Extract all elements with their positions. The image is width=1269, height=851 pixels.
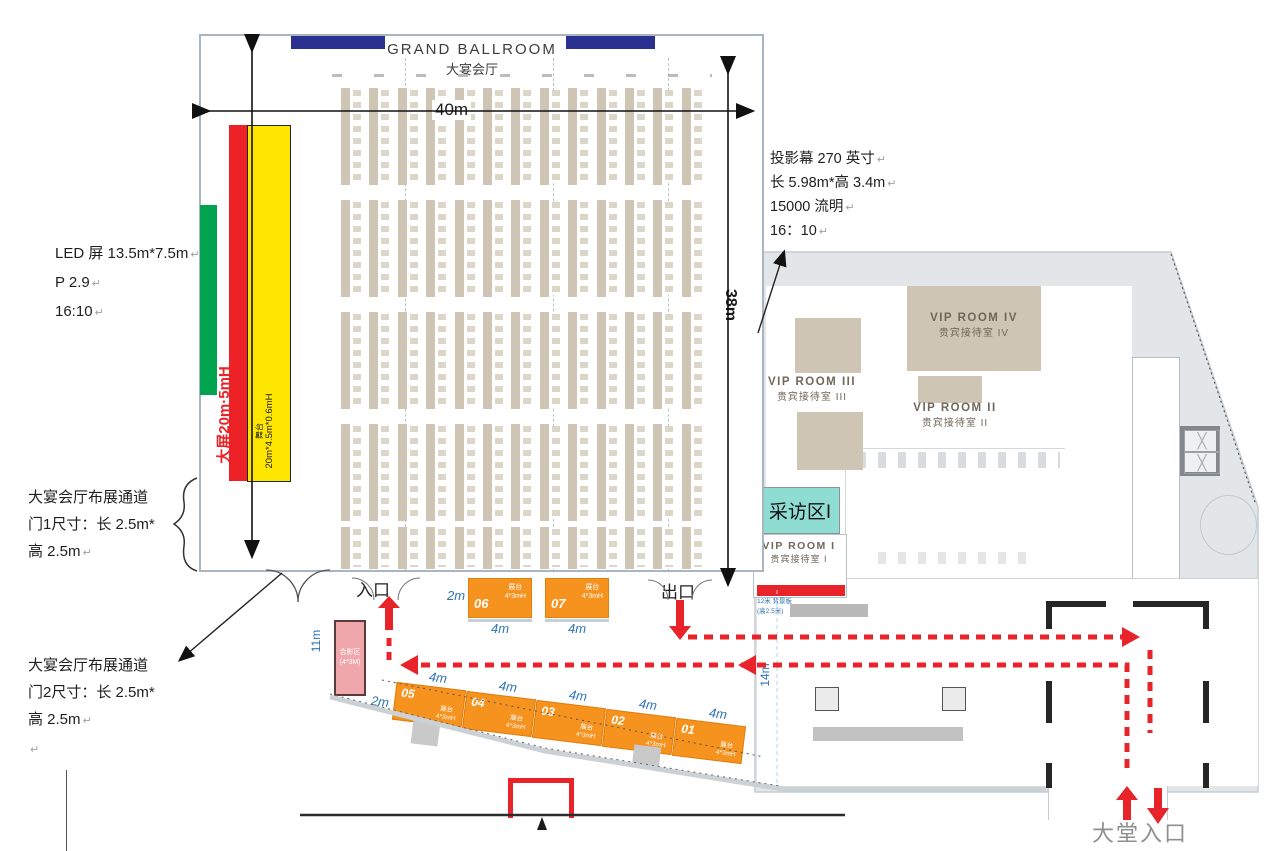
booth-depth-label-diag: 2m (369, 693, 391, 710)
banquet-table (341, 88, 350, 185)
chair-column (467, 529, 475, 567)
vip-room-4-label: VIP ROOM IV 贵宾接待室 IV (905, 312, 1043, 339)
booth-size: 4*3mH (715, 749, 736, 758)
chair-column (580, 314, 588, 407)
chair-column (523, 529, 531, 567)
backdrop-note-line2: (高2.5米) (757, 607, 783, 617)
elevator-icon: ╳ (1184, 452, 1220, 474)
booth-01-info: 展台4*3mH (715, 741, 737, 759)
booth-04: 04 展台4*3mH (462, 691, 536, 737)
chair-column (552, 426, 560, 519)
entrance-recess (1048, 786, 1168, 820)
banquet-table (625, 527, 634, 569)
banquet-table (568, 88, 577, 185)
banquet-table (597, 312, 606, 409)
return-mark: ↵ (30, 744, 39, 756)
chair-column (495, 90, 503, 183)
return-mark: ↵ (92, 278, 101, 290)
backdrop-note-line1: 12米 背景板 (757, 597, 792, 607)
chair-column (694, 314, 702, 407)
door2-note-line1: 大宴会厅布展通道 (28, 652, 155, 679)
chair-column (694, 202, 702, 295)
chair-column (552, 529, 560, 567)
lobby-wall (1133, 601, 1209, 607)
stage-truss-bar-right (566, 36, 655, 49)
chair-column (410, 426, 418, 519)
vip-room-2-label: VIP ROOM II 贵宾接待室 II (903, 402, 1007, 429)
banquet-table (540, 88, 549, 185)
banquet-table (597, 200, 606, 297)
chair-column (694, 90, 702, 183)
banquet-table (483, 88, 492, 185)
chair-column (467, 426, 475, 519)
chair-column (552, 90, 560, 183)
booth-06-number: 06 (474, 596, 488, 611)
chair-column (353, 529, 361, 567)
door1-note: 大宴会厅布展通道 门1尺寸：长 2.5m* 高 2.5m↵ (28, 484, 155, 567)
exit-label: 出口 (661, 578, 695, 603)
booth-size: 4*3mH (435, 713, 456, 722)
chair-column (438, 426, 446, 519)
main-screen-label: 大屏20m·5mH (213, 335, 231, 495)
chair-column (552, 202, 560, 295)
chair-column (609, 426, 617, 519)
banquet-table (511, 200, 520, 297)
booth-depth-label-top: 2m (446, 588, 466, 603)
chair-column (438, 202, 446, 295)
door1-note-line1: 大宴会厅布展通道 (28, 484, 155, 511)
banquet-table (568, 200, 577, 297)
return-mark: ↵ (877, 154, 886, 166)
banquet-table (540, 527, 549, 569)
column-pillar (632, 744, 661, 769)
door1-note-line2: 门1尺寸：长 2.5m* (28, 511, 155, 538)
lobby-wall (1203, 763, 1209, 788)
chair-column (665, 314, 673, 407)
vip-room-2-block (918, 376, 982, 403)
banquet-table (682, 312, 691, 409)
door1-note-line3: 高 2.5m (28, 543, 81, 560)
chair-column (580, 426, 588, 519)
banquet-table (369, 527, 378, 569)
column-pillar (815, 687, 839, 711)
chair-column (410, 202, 418, 295)
banquet-table (483, 312, 492, 409)
service-corridor (1132, 357, 1180, 580)
booth-01-number: 01 (680, 722, 695, 738)
chair-column (495, 426, 503, 519)
chair-column (665, 202, 673, 295)
banquet-table (568, 527, 577, 569)
banquet-table (653, 527, 662, 569)
return-mark: ↵ (887, 178, 896, 190)
return-mark: ↵ (819, 226, 828, 238)
vip-room-4-name-cn: 贵宾接待室 IV (905, 324, 1043, 339)
washroom-fixtures (858, 452, 1060, 468)
door2-callout-arrow (180, 573, 282, 660)
chair-column (523, 426, 531, 519)
banquet-table (625, 88, 634, 185)
corridor-depth-label: 14m (758, 655, 772, 695)
banquet-table (625, 424, 634, 521)
chair-column (410, 529, 418, 567)
chair-column (495, 529, 503, 567)
banquet-table (398, 424, 407, 521)
backdrop-red-bar (757, 585, 845, 596)
lobby-wall (1203, 681, 1209, 723)
booth-size: 4*3mH (582, 593, 603, 600)
door1-brace (174, 478, 197, 571)
booth-size: 4*3mH (505, 593, 526, 600)
floor-plan: ╳ ╳ VIP ROOM IV 贵宾接待室 IV VIP ROOM III 贵宾… (0, 0, 1269, 851)
banquet-table (653, 88, 662, 185)
chair-column (637, 426, 645, 519)
chair-column (495, 202, 503, 295)
door-swing-arc (398, 578, 420, 600)
chair-column (523, 202, 531, 295)
chair-column (609, 314, 617, 407)
chair-column (609, 90, 617, 183)
banquet-table (341, 424, 350, 521)
chair-column (665, 426, 673, 519)
chair-column (381, 90, 389, 183)
stage-name: 舞台 (255, 357, 264, 505)
banquet-table (511, 527, 520, 569)
lobby-wall (1046, 601, 1052, 629)
north-arrow (537, 817, 547, 830)
lobby-wall (1046, 763, 1052, 788)
chair-column (523, 90, 531, 183)
interview-area-box: 采访区I (760, 487, 840, 534)
lobby-wall (1046, 681, 1052, 723)
booth-07-info: 展台 4*3mH (582, 583, 603, 601)
chair-column (580, 90, 588, 183)
exit-arrow-shaft (676, 600, 684, 628)
reception-counter (813, 727, 963, 741)
banquet-table (398, 88, 407, 185)
chair-column (353, 314, 361, 407)
booth-02-number: 02 (610, 713, 625, 729)
lobby-wall (1203, 601, 1209, 629)
booth-07-number: 07 (551, 596, 565, 611)
vip-room-4-name-en: VIP ROOM IV (905, 312, 1043, 324)
banquet-table (682, 424, 691, 521)
chair-column (694, 426, 702, 519)
booth-label: 展台 (508, 584, 522, 591)
banquet-table (597, 527, 606, 569)
banquet-table (341, 527, 350, 569)
return-mark: ↵ (95, 307, 104, 319)
vip-room-3-block-upper (795, 318, 861, 373)
banquet-table (568, 312, 577, 409)
banquet-table (625, 312, 634, 409)
banquet-table (597, 88, 606, 185)
return-mark: ↵ (83, 715, 92, 727)
vip-room-3-label: VIP ROOM III 贵宾接待室 III (760, 376, 864, 403)
booth-06-width: 4m (468, 621, 532, 636)
projector-note-line2: 长 5.98m*高 3.4m (770, 175, 885, 191)
door-swing-arc (266, 570, 298, 602)
backdrop-grey-bar (790, 604, 868, 617)
banquet-table (341, 312, 350, 409)
banquet-table (369, 88, 378, 185)
booth-03-number: 03 (540, 704, 555, 720)
banquet-table (341, 200, 350, 297)
banquet-table (455, 527, 464, 569)
booth-07: 07 展台 4*3mH (545, 578, 609, 618)
chair-column (609, 202, 617, 295)
chair-column (353, 90, 361, 183)
vip-room-2-name-cn: 贵宾接待室 II (903, 414, 1007, 429)
booth-04-number: 04 (470, 695, 485, 711)
banquet-table (455, 200, 464, 297)
banquet-table (653, 200, 662, 297)
chair-column (381, 529, 389, 567)
banquet-table (597, 424, 606, 521)
led-note-line1: LED 屏 13.5m*7.5m (55, 245, 188, 262)
inbound-arrowhead (400, 655, 418, 675)
projector-note-line1: 投影幕 270 英寸 (770, 151, 875, 167)
banquet-table (369, 200, 378, 297)
booth-03: 03 展台4*3mH (532, 700, 606, 746)
ballroom-title-en: GRAND BALLROOM (372, 41, 572, 58)
chair-column (665, 90, 673, 183)
photo-area-line2: (4*3M) (339, 658, 360, 668)
led-note-line3: 16:10 (55, 303, 93, 320)
banquet-table (625, 200, 634, 297)
banquet-table (540, 312, 549, 409)
chair-column (665, 529, 673, 567)
chair-column (580, 202, 588, 295)
corridor-division-line (845, 578, 1258, 579)
banquet-table (682, 88, 691, 185)
chair-column (495, 314, 503, 407)
booth-04-info: 展台4*3mH (505, 714, 527, 732)
led-note-line2: P 2.9 (55, 274, 90, 291)
banquet-table (540, 424, 549, 521)
inbound-arrowhead (738, 655, 756, 675)
banquet-table (455, 424, 464, 521)
elevator-shaft: ╳ ╳ (1180, 426, 1220, 476)
chair-column (552, 314, 560, 407)
chair-column (381, 314, 389, 407)
chair-column (410, 314, 418, 407)
entrance-arrow-shaft (385, 606, 393, 630)
banquet-table (398, 312, 407, 409)
washroom-fixtures (878, 552, 1028, 564)
booth-05-number: 05 (400, 686, 415, 702)
chair-column (637, 314, 645, 407)
banquet-table (398, 527, 407, 569)
door2-note: 大宴会厅布展通道 门2尺寸：长 2.5m* 高 2.5m↵ ↵ (28, 652, 155, 764)
chair-column (467, 314, 475, 407)
entrance-label: 入口 (356, 576, 390, 601)
projector-note-line3: 15000 流明 (770, 199, 843, 215)
vip-room-3-block-lower (797, 412, 863, 470)
chair-column (523, 314, 531, 407)
banquet-table (511, 424, 520, 521)
chair-column (381, 426, 389, 519)
chair-column (637, 90, 645, 183)
lobby-entrance-label: 大堂入口 (1092, 816, 1188, 848)
vip-room-3-name-cn: 贵宾接待室 III (760, 388, 864, 403)
booth-07-width: 4m (545, 621, 609, 636)
stage-size: 20m*4.5m*0.6mH (264, 357, 275, 505)
partition-line (845, 448, 1065, 449)
banquet-table (483, 200, 492, 297)
chair-column (637, 202, 645, 295)
door2-note-line3: 高 2.5m (28, 711, 81, 728)
return-mark: ↵ (845, 202, 854, 214)
banquet-table (682, 527, 691, 569)
banquet-table (369, 312, 378, 409)
photo-wall-dimension: 11m (309, 621, 323, 661)
banquet-table (511, 88, 520, 185)
chair-column (353, 426, 361, 519)
booth-size: 4*3mH (575, 731, 596, 740)
door-swing-arc (298, 570, 330, 602)
vip-room-1-name-en: VIP ROOM I (750, 540, 848, 552)
booth-06: 06 展台 4*3mH (468, 578, 532, 618)
projector-note: 投影幕 270 英寸↵ 长 5.98m*高 3.4m↵ 15000 流明↵ 16… (770, 148, 896, 244)
projector-note-line4: 16：10 (770, 223, 817, 239)
booth-size: 4*3mH (505, 722, 526, 731)
banquet-table (511, 312, 520, 409)
led-note: LED 屏 13.5m*7.5m↵ P 2.9↵ 16:10↵ (55, 240, 200, 327)
spiral-stair (1200, 495, 1257, 555)
vip-room-3-name-en: VIP ROOM III (760, 376, 864, 388)
banquet-table (426, 312, 435, 409)
chair-column (637, 529, 645, 567)
ceiling-dash-row (332, 74, 712, 77)
height-dimension-label: 38m (721, 281, 739, 329)
chair-column (381, 202, 389, 295)
banquet-table (540, 200, 549, 297)
chair-column (410, 90, 418, 183)
chair-column (353, 202, 361, 295)
banquet-table (483, 424, 492, 521)
booth-03-info: 展台4*3mH (575, 723, 597, 741)
banquet-table (455, 312, 464, 409)
chair-column (694, 529, 702, 567)
vip-room-1-name-cn: 贵宾接待室 I (750, 552, 848, 565)
booth-label: 展台 (585, 584, 599, 591)
banquet-table (426, 527, 435, 569)
return-mark: ↵ (190, 249, 199, 261)
chair-column (438, 529, 446, 567)
chair-column (467, 202, 475, 295)
banquet-table (483, 527, 492, 569)
page-edge-line (66, 770, 67, 851)
photo-area-box: 合影区 (4*3M) (334, 620, 366, 696)
lobby-wall (1046, 601, 1106, 607)
stage-truss-bar-left (291, 36, 385, 49)
column-pillar (411, 719, 441, 746)
banquet-table (682, 200, 691, 297)
booth-06-info: 展台 4*3mH (505, 583, 526, 601)
door2-note-line2: 门2尺寸：长 2.5m* (28, 679, 155, 706)
banquet-table (653, 312, 662, 409)
chair-column (580, 529, 588, 567)
door-swing-arc (692, 580, 712, 600)
photo-area-line1: 合影区 (340, 648, 361, 658)
chair-column (609, 529, 617, 567)
elevator-icon: ╳ (1184, 430, 1220, 452)
banquet-table (653, 424, 662, 521)
vip-room-2-name-en: VIP ROOM II (903, 402, 1007, 414)
width-dimension-label: 40m (432, 100, 471, 120)
column-pillar (942, 687, 966, 711)
chair-column (438, 314, 446, 407)
banquet-table (369, 424, 378, 521)
booth-05-info: 展台4*3mH (435, 705, 457, 723)
banquet-table (398, 200, 407, 297)
booth-01: 01 展台4*3mH (672, 718, 746, 764)
banquet-table (568, 424, 577, 521)
return-mark: ↵ (83, 547, 92, 559)
main-gate-frame (508, 778, 574, 818)
banquet-table (426, 424, 435, 521)
banquet-table (426, 200, 435, 297)
stage-label: 舞台 20m*4.5m*0.6mH (255, 357, 281, 505)
vip-room-1-label: VIP ROOM I 贵宾接待室 I (750, 540, 848, 565)
exit-arrow-head (669, 626, 691, 640)
